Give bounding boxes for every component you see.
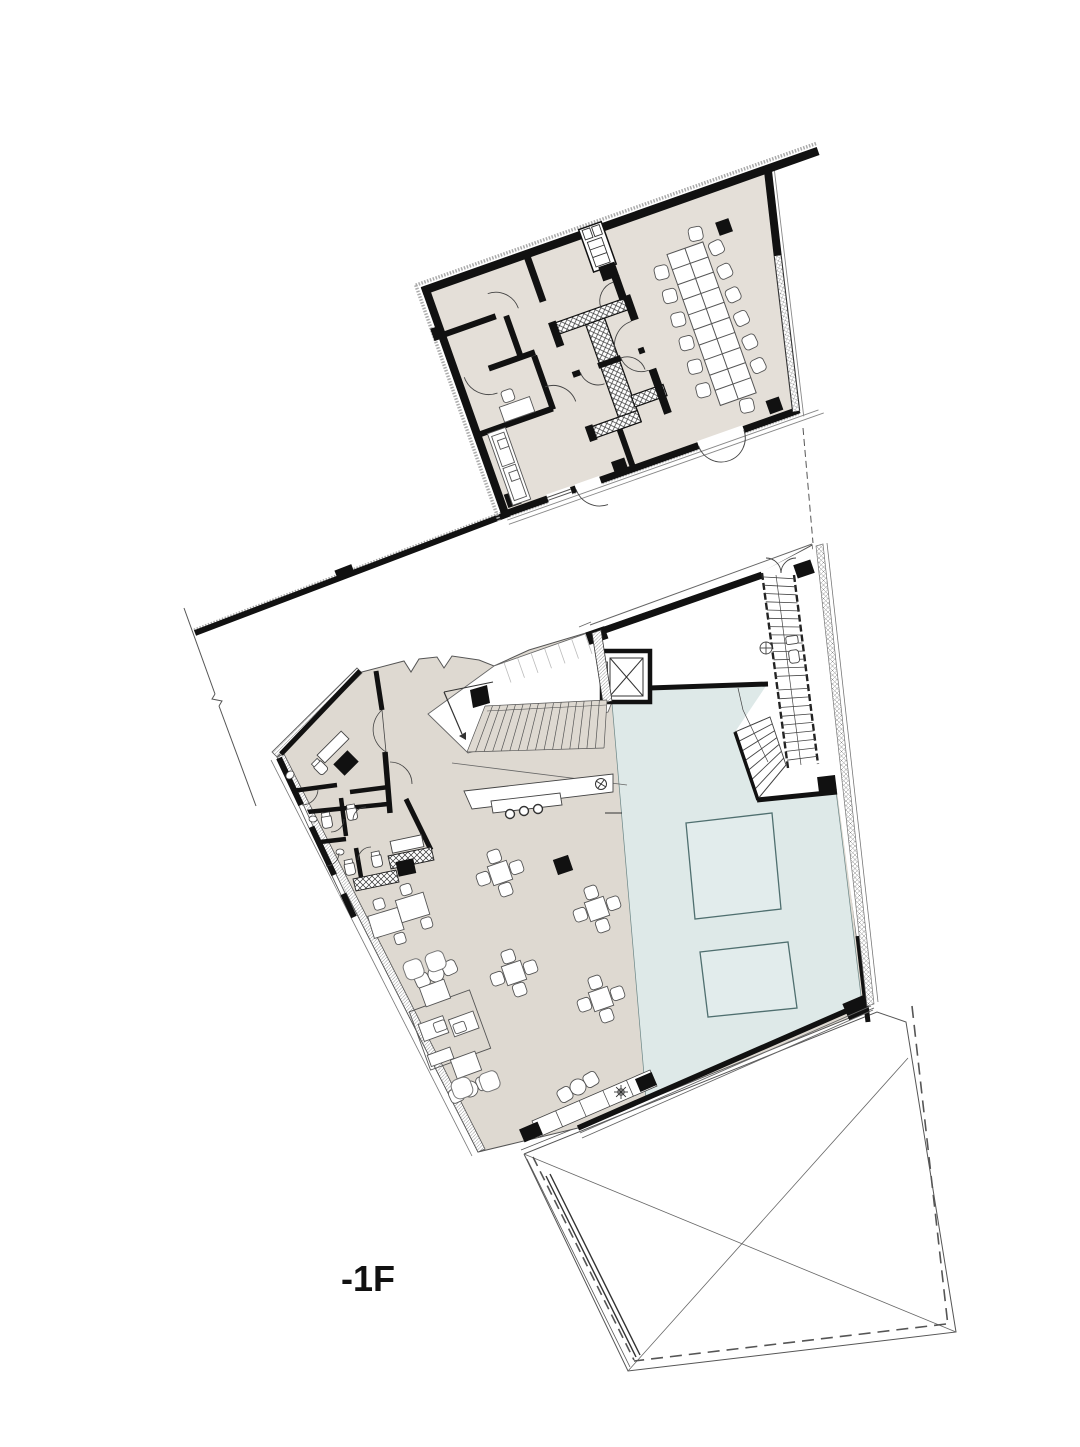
svg-text:-1F: -1F xyxy=(341,1258,395,1299)
